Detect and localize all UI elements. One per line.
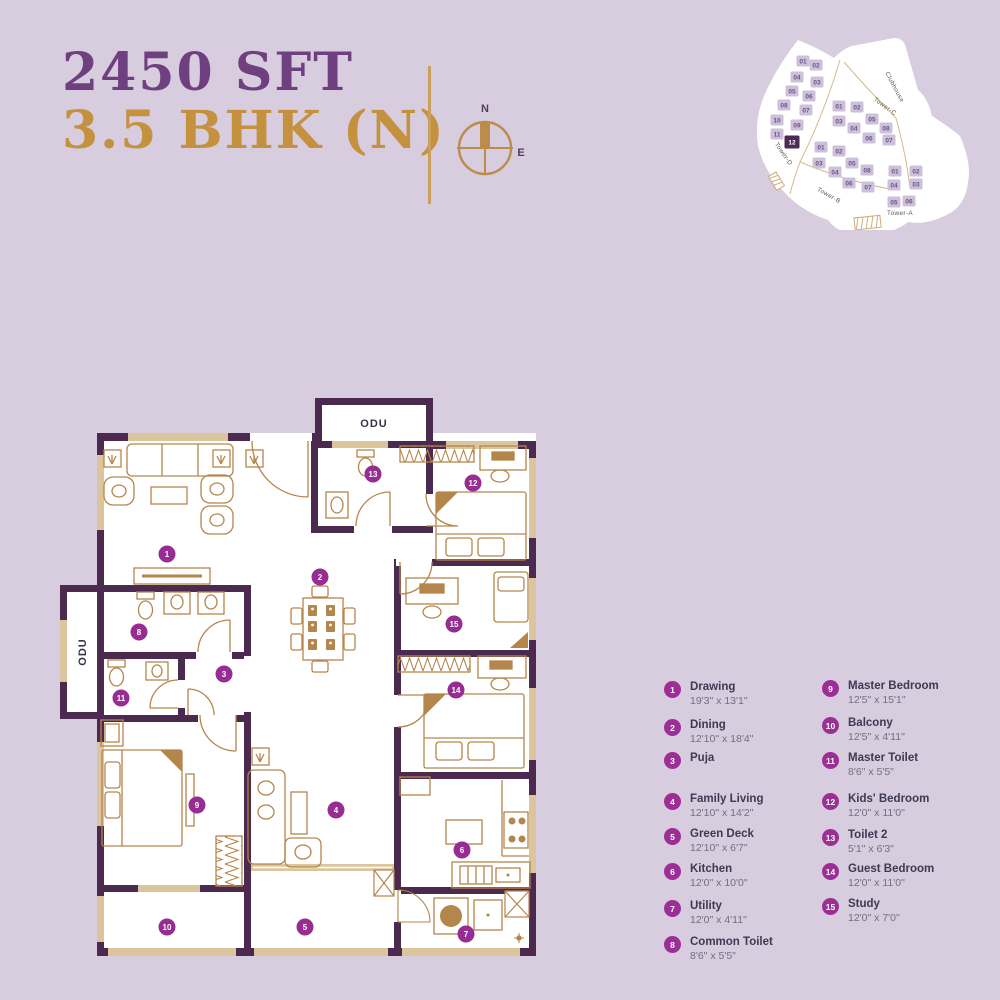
site-unit-number: 01: [835, 103, 843, 110]
legend-badge: 11: [822, 752, 839, 769]
site-unit-number: 09: [793, 122, 801, 129]
site-unit-number: 07: [885, 137, 893, 144]
legend-badge: 3: [664, 752, 681, 769]
site-unit-number: 02: [912, 168, 920, 175]
site-unit-number: 03: [912, 181, 920, 188]
room-marker-number: 11: [117, 694, 126, 703]
legend-badge: 1: [664, 681, 681, 698]
site-unit-number: 08: [780, 102, 788, 109]
odu-top-label: ODU: [360, 418, 387, 430]
site-unit-number: 08: [863, 167, 871, 174]
site-unit-number: 06: [805, 93, 813, 100]
legend-badge: 4: [664, 793, 681, 810]
legend-item-dining: 2 Dining12'10" x 18'4": [664, 718, 824, 747]
site-unit-number: 06: [845, 180, 853, 187]
site-unit-number: 03: [813, 79, 821, 86]
legend-item-master-bedroom: 9 Master Bedroom12'5" x 15'1": [822, 679, 982, 708]
site-unit-number: 04: [890, 182, 898, 189]
room-marker-number: 8: [137, 628, 142, 637]
floorplan-brochure-page: 2450 SFT 3.5 BHK (N) N E: [0, 0, 1000, 1000]
site-tower-label: Tower-A: [887, 210, 913, 217]
room-marker-number: 1: [165, 550, 170, 559]
legend-item-guest-bedroom: 14 Guest Bedroom12'0" x 11'0": [822, 862, 982, 891]
site-unit-number: 02: [835, 148, 843, 155]
room-marker-number: 10: [163, 923, 172, 932]
legend-badge: 8: [664, 936, 681, 953]
site-unit-number: 05: [788, 88, 796, 95]
site-unit-number: 05: [868, 116, 876, 123]
site-unit-number: 07: [864, 184, 872, 191]
title-divider: [428, 66, 431, 204]
room-marker-number: 12: [469, 479, 478, 488]
room-marker-number: 5: [303, 923, 308, 932]
site-unit-number: 07: [802, 107, 810, 114]
area-text: 2450 SFT: [62, 44, 446, 102]
site-unit-number: 04: [793, 74, 801, 81]
site-unit-number: 06: [905, 198, 913, 205]
unit-type-text: 3.5 BHK (N): [62, 102, 446, 160]
legend-badge: 14: [822, 863, 839, 880]
legend-item-utility: 7 Utility12'0" x 4'11": [664, 899, 824, 928]
room-marker-number: 3: [222, 670, 227, 679]
legend-badge: 9: [822, 680, 839, 697]
legend-item-drawing: 1 Drawing19'3" x 13'1": [664, 680, 824, 709]
room-marker-number: 9: [195, 801, 200, 810]
legend-item-common-toilet: 8 Common Toilet8'6" x 5'5": [664, 935, 824, 964]
site-unit-number: 03: [835, 118, 843, 125]
legend-item-toilet-2: 13 Toilet 25'1" x 6'3": [822, 828, 982, 857]
site-unit-number: 11: [774, 131, 781, 138]
site-unit-number: 08: [882, 125, 890, 132]
legend-item-kitchen: 6 Kitchen12'0" x 10'0": [664, 862, 824, 891]
site-unit-number: 06: [865, 135, 873, 142]
site-unit-number: 12: [788, 139, 796, 146]
site-unit-number: 05: [890, 199, 898, 206]
site-unit-number: 05: [848, 160, 856, 167]
legend-badge: 6: [664, 863, 681, 880]
room-marker-number: 15: [450, 620, 459, 629]
room-marker-number: 13: [369, 470, 378, 479]
compass-north-label: N: [481, 103, 489, 115]
legend-badge: 10: [822, 717, 839, 734]
room-marker-number: 4: [334, 806, 339, 815]
legend-badge: 13: [822, 829, 839, 846]
plan-title: 2450 SFT 3.5 BHK (N): [62, 44, 446, 160]
room-marker-number: 6: [460, 846, 465, 855]
room-marker-number: 7: [464, 930, 469, 939]
room-marker-number: 2: [318, 573, 323, 582]
legend-item-puja: 3 Puja: [664, 751, 824, 769]
legend-item-study: 15 Study12'0" x 7'0": [822, 897, 982, 926]
legend-item-balcony: 10 Balcony12'5" x 4'11": [822, 716, 982, 745]
legend-badge: 2: [664, 719, 681, 736]
legend-item-master-toilet: 11 Master Toilet8'6" x 5'5": [822, 751, 982, 780]
site-unit-number: 03: [815, 160, 823, 167]
site-unit-number: 02: [812, 62, 820, 69]
site-key-map: 0102040305060807100911120102030405060807…: [748, 24, 980, 230]
legend-badge: 12: [822, 793, 839, 810]
site-unit-number: 02: [853, 104, 861, 111]
site-unit-number: 04: [831, 169, 839, 176]
site-unit-number: 01: [891, 168, 899, 175]
site-unit-number: 04: [850, 125, 858, 132]
room-marker-number: 14: [452, 686, 461, 695]
legend-item-green-deck: 5 Green Deck12'10" x 6'7": [664, 827, 824, 856]
site-unit-number: 10: [773, 117, 781, 124]
legend-item-kids-bedroom: 12 Kids' Bedroom12'0" x 11'0": [822, 792, 982, 821]
odu-left-label: ODU: [77, 638, 89, 665]
legend-badge: 15: [822, 898, 839, 915]
site-unit-number: 01: [817, 144, 825, 151]
legend-badge: 5: [664, 828, 681, 845]
compass-east-label: E: [517, 147, 524, 159]
site-unit-number: 01: [799, 58, 807, 65]
floor-plan: ODU ODU 123456789101112131415: [48, 386, 548, 970]
legend-item-family-living: 4 Family Living12'10" x 14'2": [664, 792, 824, 821]
compass-icon: N E: [443, 96, 527, 191]
legend-badge: 7: [664, 900, 681, 917]
